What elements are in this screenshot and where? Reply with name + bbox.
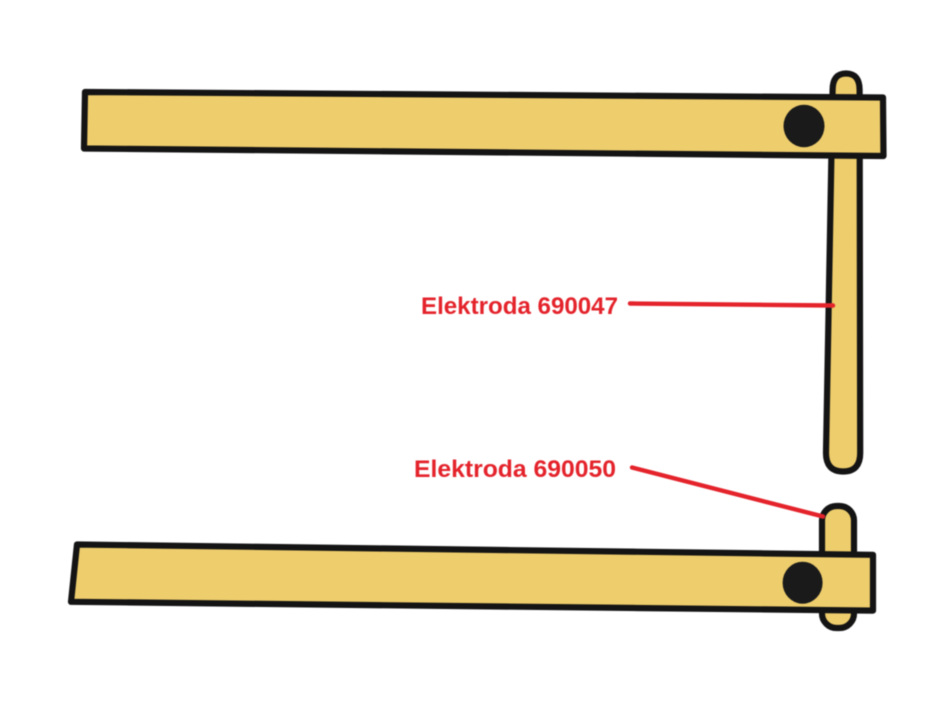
svg-text:Elektroda 690047: Elektroda 690047 <box>421 293 618 320</box>
svg-text:Elektroda 690050: Elektroda 690050 <box>414 456 616 483</box>
